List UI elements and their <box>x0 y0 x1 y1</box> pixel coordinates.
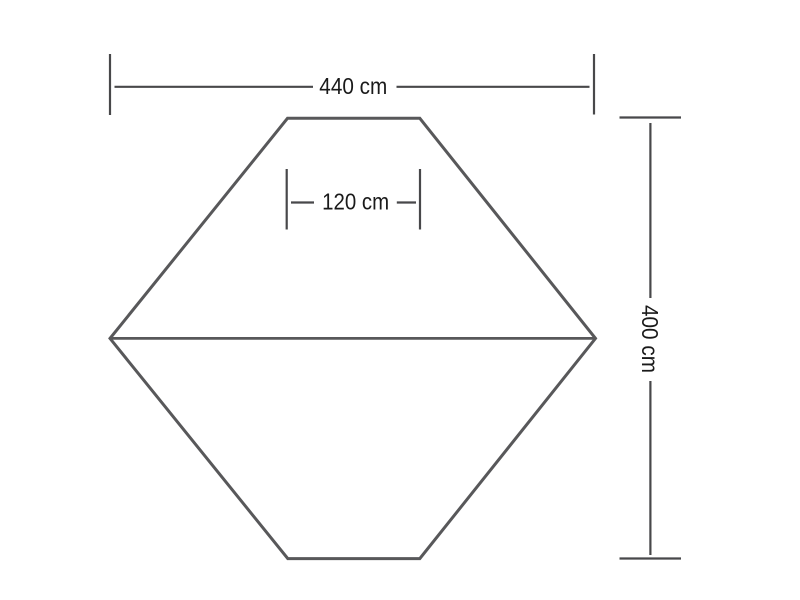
svg-text:440 cm: 440 cm <box>319 73 387 99</box>
svg-text:120 cm: 120 cm <box>322 189 389 215</box>
svg-text:400 cm: 400 cm <box>637 305 663 373</box>
